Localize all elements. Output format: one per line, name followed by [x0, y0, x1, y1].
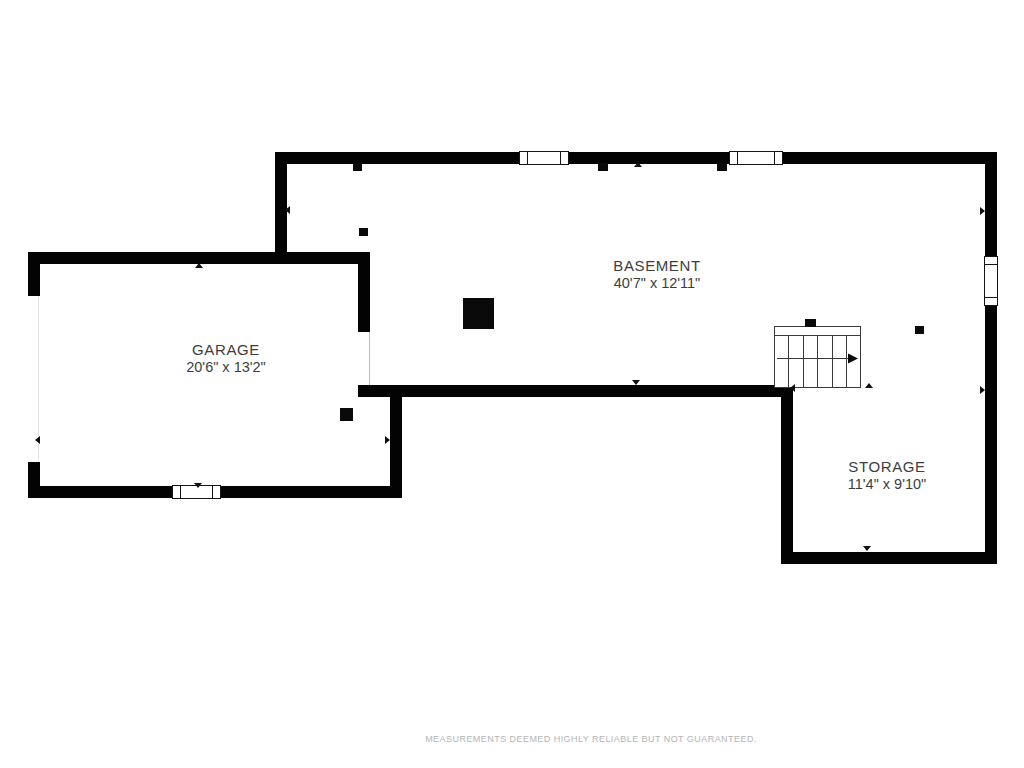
window-frame-line: [985, 297, 997, 298]
opening-marker-basement-left-wall: [285, 206, 290, 214]
room-dimensions: 11'4" x 9'10": [848, 476, 926, 493]
opening-marker-basement-bottom: [632, 380, 640, 385]
room-label-basement: BASEMENT 40'7" x 12'11": [613, 257, 700, 292]
opening-marker-basement-top: [634, 162, 642, 167]
marker-stair-top: [805, 319, 816, 327]
window-symbol-basement-top-1: [519, 151, 569, 165]
wall-garage-right-upper: [358, 264, 370, 332]
wall-stub-top-2: [598, 163, 608, 171]
opening-marker-garage-window: [194, 483, 202, 488]
post-garage: [340, 408, 353, 421]
room-name: GARAGE: [186, 341, 266, 358]
wall-storage-bottom: [781, 552, 997, 564]
room-dimensions: 40'7" x 12'11": [613, 275, 700, 292]
window-frame-line: [737, 152, 738, 164]
room-dimensions: 20'6" x 13'2": [186, 359, 266, 376]
window-frame-line: [774, 152, 775, 164]
room-name: BASEMENT: [613, 257, 700, 274]
opening-marker-right-wall-lower: [980, 386, 985, 394]
room-label-garage: GARAGE 20'6" x 13'2": [186, 341, 266, 376]
opening-marker-storage-top: [865, 383, 873, 388]
stairs-icon: [774, 326, 861, 388]
disclaimer-text: MEASUREMENTS DEEMED HIGHLY RELIABLE BUT …: [425, 734, 757, 744]
room-name: STORAGE: [848, 458, 926, 475]
window-frame-line: [180, 486, 181, 498]
floor-plan: BASEMENT 40'7" x 12'11" GARAGE 20'6" x 1…: [0, 0, 1024, 768]
window-frame-line: [560, 152, 561, 164]
opening-marker-garage-door: [35, 436, 40, 444]
window-symbol-basement-top-2: [729, 151, 783, 165]
opening-marker-storage-bottom: [863, 546, 871, 551]
opening-line-garage-basement: [369, 332, 370, 385]
window-frame-line: [212, 486, 213, 498]
marker-basement-right: [915, 326, 924, 334]
wall-stub-top-1: [353, 163, 362, 171]
opening-marker-garage-top: [195, 263, 203, 268]
wall-garage-left-upper: [28, 252, 40, 296]
room-label-storage: STORAGE 11'4" x 9'10": [848, 458, 926, 493]
wall-right-exterior: [985, 152, 997, 564]
wall-stub-top-3: [717, 163, 727, 171]
opening-marker-garage-right: [385, 436, 390, 444]
wall-storage-left: [781, 385, 793, 564]
wall-basement-bottom: [358, 385, 793, 397]
window-frame-line: [985, 264, 997, 265]
window-symbol-basement-right: [984, 256, 998, 306]
marker-basement-left: [359, 228, 368, 236]
wall-garage-right-lower: [390, 392, 402, 498]
opening-marker-stair-corner: [790, 384, 795, 392]
window-frame-line: [527, 152, 528, 164]
post-basement: [463, 298, 494, 329]
opening-marker-right-wall-upper: [980, 207, 985, 215]
